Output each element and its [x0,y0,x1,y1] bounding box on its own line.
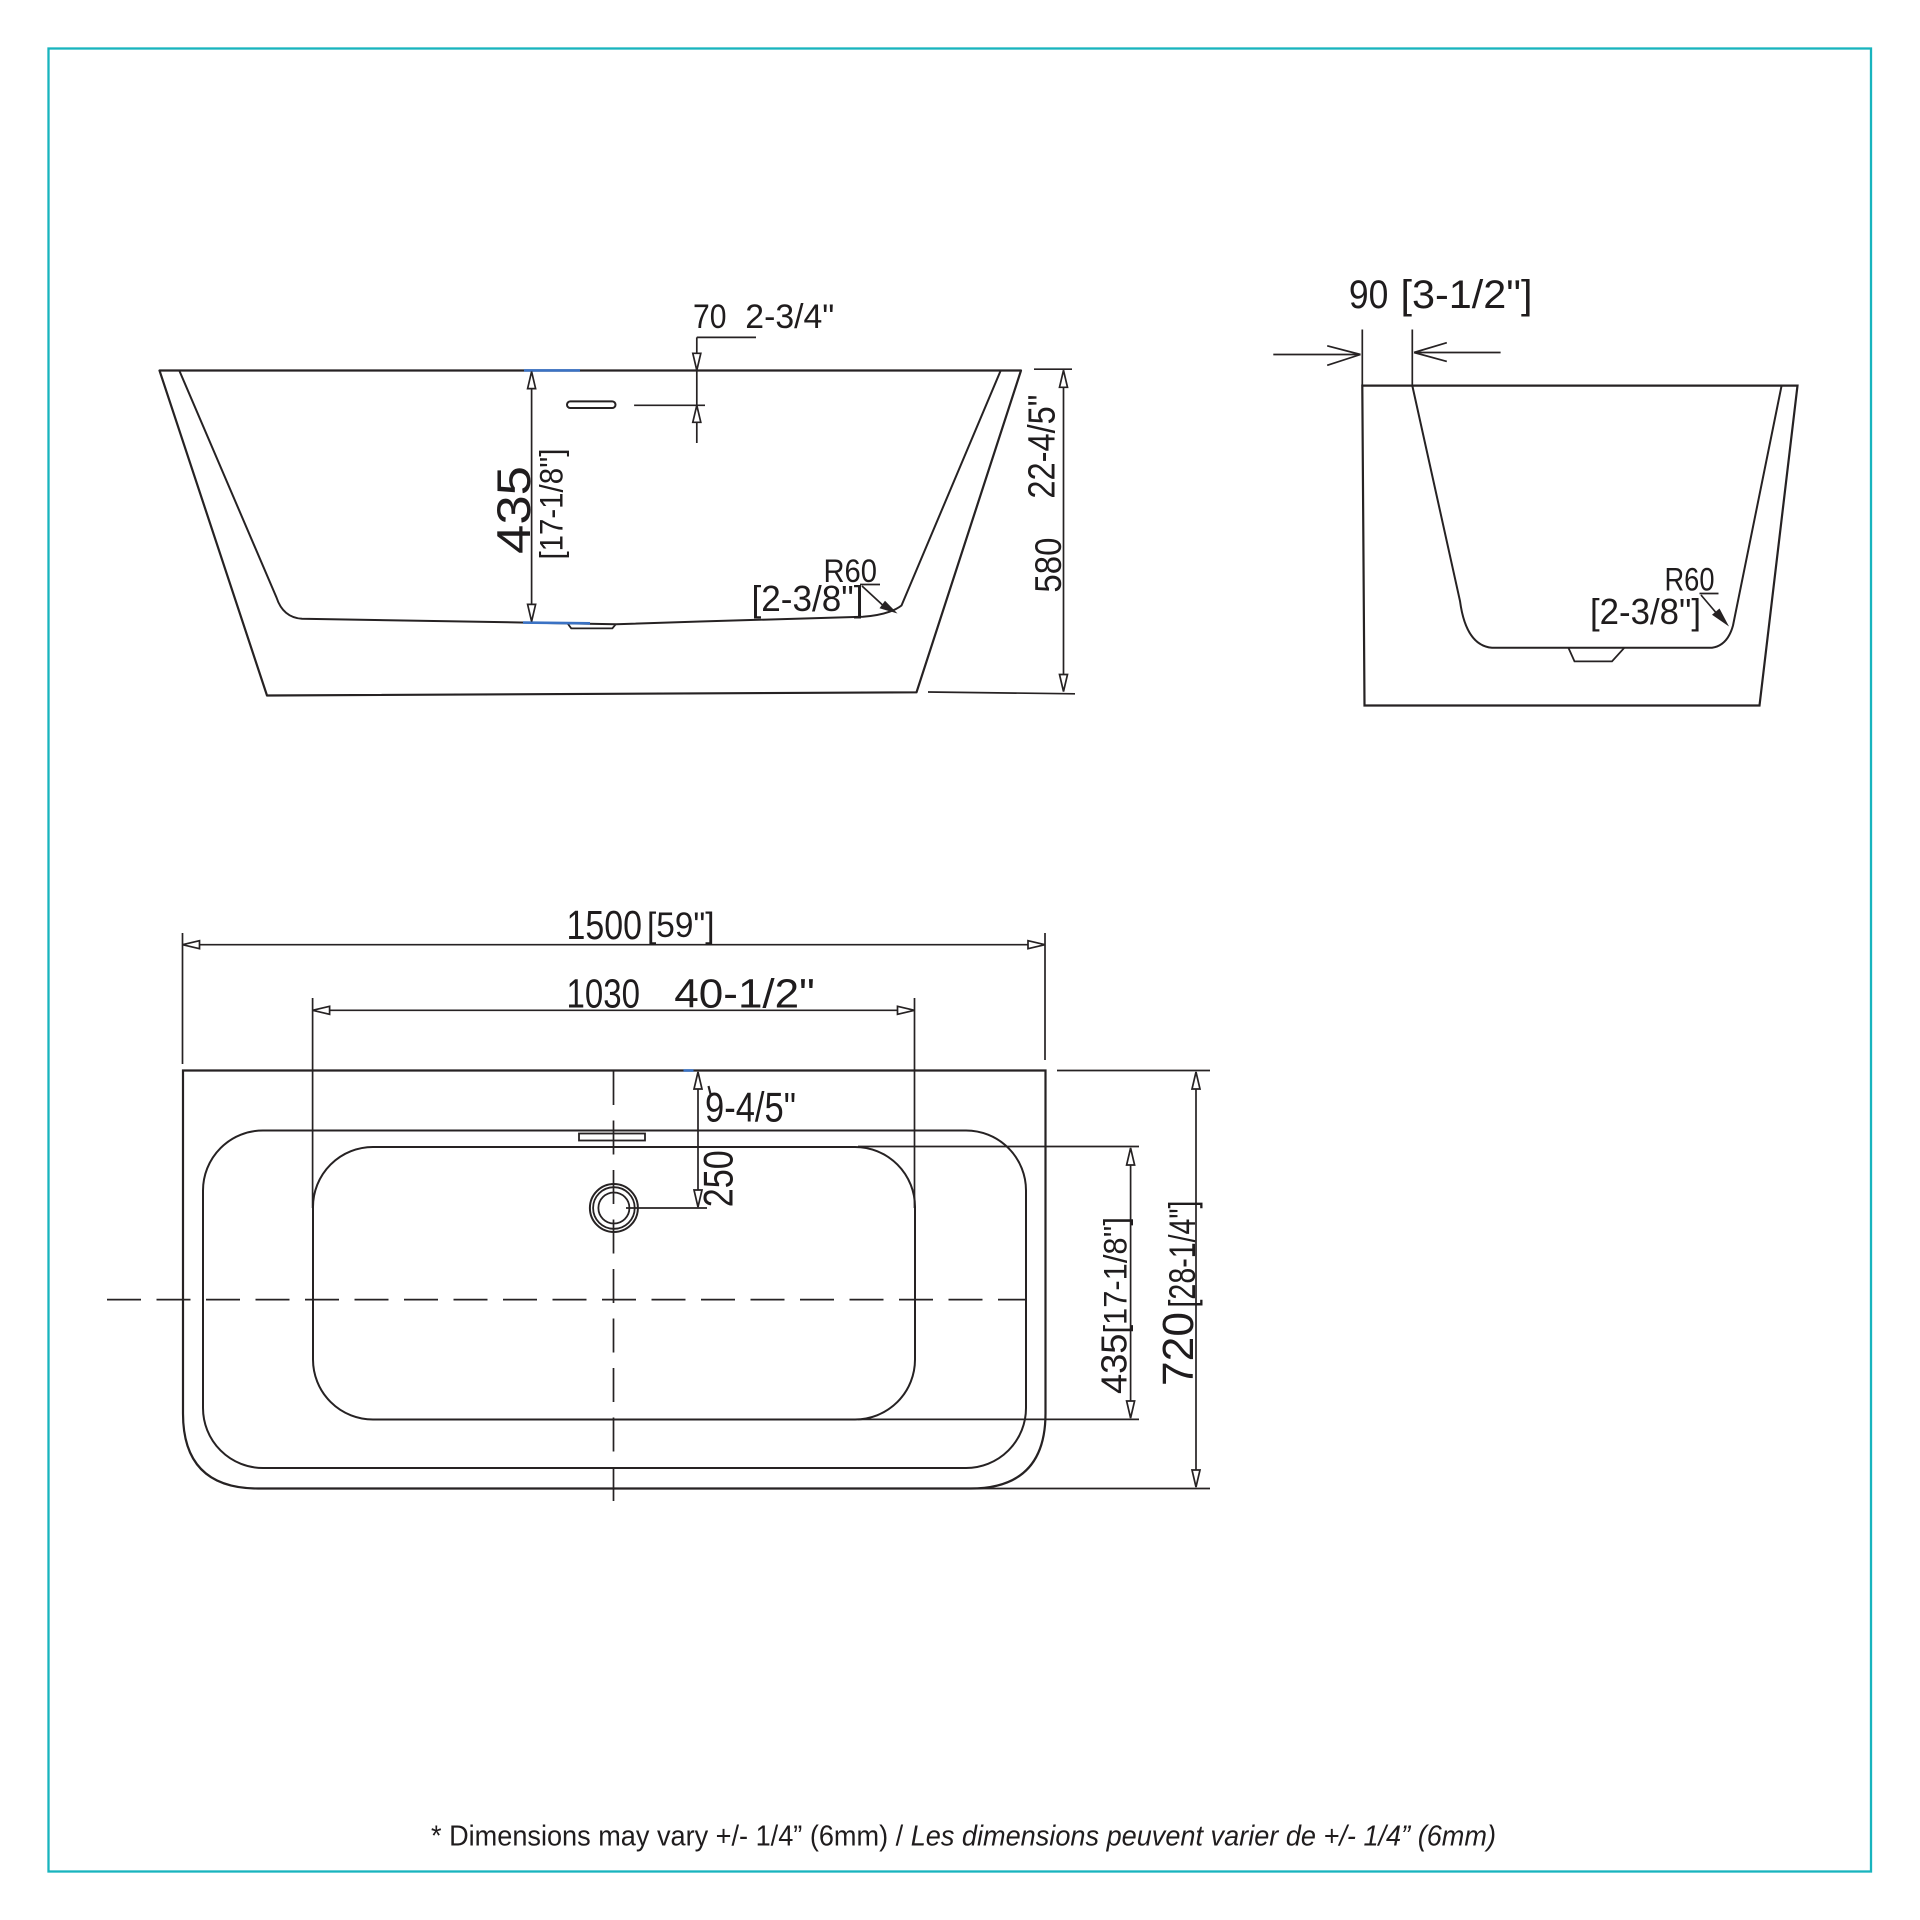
svg-text:22-4/5": 22-4/5" [1022,395,1064,499]
svg-text:[2-3/8"]: [2-3/8"] [1590,591,1701,632]
svg-text:[17-1/8'']: [17-1/8''] [1098,1217,1134,1334]
svg-text:435: 435 [1094,1334,1135,1395]
svg-text:[17-1/8'']: [17-1/8''] [533,449,570,560]
svg-text:580: 580 [1028,538,1069,593]
svg-text:250: 250 [695,1150,742,1207]
svg-text:* Dimensions may vary +/- 1/4”: * Dimensions may vary +/- 1/4” (6mm) / L… [431,1821,1496,1853]
svg-text:9-4/5": 9-4/5" [705,1083,796,1130]
svg-text:720: 720 [1155,1312,1203,1386]
svg-text:70: 70 [693,298,727,336]
svg-text:[2-3/8"]: [2-3/8"] [752,578,864,619]
svg-text:2-3/4": 2-3/4" [745,298,834,336]
svg-text:[59"]: [59"] [647,905,715,945]
svg-text:40-1/2": 40-1/2" [674,971,815,1017]
svg-text:[28-1/4"]: [28-1/4"] [1162,1201,1203,1308]
svg-text:90: 90 [1349,273,1389,317]
svg-text:1500: 1500 [567,902,643,948]
svg-text:1030: 1030 [567,971,641,1017]
svg-text:[3-1/2"]: [3-1/2"] [1401,273,1533,317]
